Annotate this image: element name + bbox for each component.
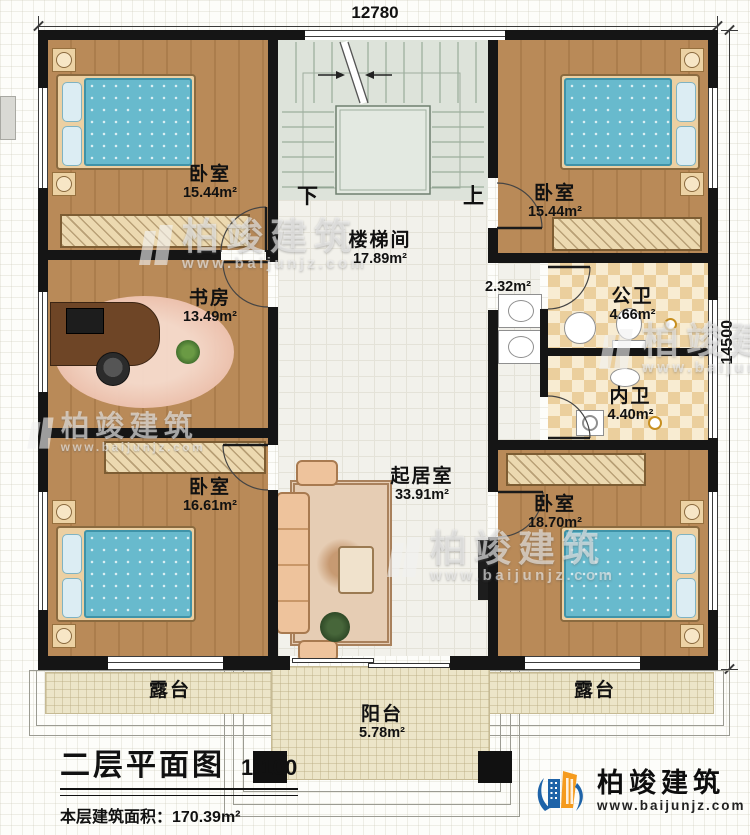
wall: [38, 428, 278, 438]
sink-basin: [508, 300, 534, 322]
nightstand: [680, 48, 704, 72]
pillow: [676, 126, 696, 166]
pillow: [676, 82, 696, 122]
adjacent-structure: [0, 96, 16, 140]
floor-plan: 12780 14500: [0, 0, 750, 835]
office-chair: [96, 352, 130, 386]
monitor: [66, 308, 104, 334]
window: [708, 88, 718, 188]
sliding-door: [368, 663, 450, 668]
bed-mattress: [564, 78, 672, 166]
plan-title: 二层平面图: [60, 740, 225, 784]
nightstand: [680, 624, 704, 648]
pillow: [62, 578, 82, 618]
brand-url: www.baijunjz.com: [597, 798, 746, 813]
dimension-top-line: [38, 26, 718, 27]
dimension-top-label: 12780: [0, 3, 750, 23]
nightstand: [680, 172, 704, 196]
sink-basin: [610, 368, 640, 387]
wall: [488, 30, 498, 178]
wall: [488, 310, 498, 440]
window: [708, 492, 718, 610]
terrace-door: [525, 656, 640, 670]
plant: [320, 612, 350, 642]
wall: [640, 656, 718, 670]
pillow: [62, 82, 82, 122]
bed-mattress: [84, 530, 192, 618]
nightstand: [52, 500, 76, 524]
floor-drain: [648, 416, 662, 430]
wall: [223, 656, 290, 670]
brand-name: 柏竣建筑: [597, 769, 746, 797]
balcony-pillar: [478, 751, 512, 783]
washer-drum: [582, 415, 598, 431]
stair-up-label: 上: [463, 180, 484, 210]
pillow: [62, 534, 82, 574]
window: [38, 292, 48, 392]
pillow: [676, 534, 696, 574]
bed-mattress: [564, 530, 672, 618]
tv: [478, 540, 488, 600]
stair-down-label: 下: [297, 180, 318, 210]
wall: [38, 656, 108, 670]
wall: [266, 250, 278, 260]
wardrobe: [104, 441, 266, 474]
nightstand: [52, 624, 76, 648]
wall: [268, 307, 278, 430]
wall: [488, 537, 498, 656]
bed-mattress: [84, 78, 192, 166]
sliding-door: [292, 658, 374, 663]
wall: [450, 656, 525, 670]
wardrobe: [552, 217, 702, 251]
nightstand: [680, 500, 704, 524]
brand-logo: 柏竣建筑 www.baijunjz.com: [533, 764, 746, 818]
floor-drain: [664, 318, 677, 331]
nightstand: [52, 48, 76, 72]
nightstand: [52, 172, 76, 196]
wall: [488, 228, 498, 263]
wall: [548, 348, 708, 356]
wall: [488, 253, 718, 263]
sink-basin: [564, 312, 596, 344]
title-underline: [60, 788, 298, 796]
plan-scale: 1:100: [241, 755, 297, 781]
terrace-left-floor: [45, 672, 297, 714]
wardrobe: [60, 214, 250, 248]
window: [38, 88, 48, 188]
wall: [38, 250, 221, 260]
wall: [268, 490, 278, 656]
window: [708, 300, 718, 438]
plant: [176, 340, 200, 364]
sink-basin: [508, 336, 534, 358]
dimension-right-label: 14500: [719, 320, 741, 365]
terrace-door: [108, 656, 223, 670]
toilet-bowl: [616, 308, 642, 340]
window: [38, 492, 48, 610]
wall: [268, 30, 278, 262]
stairwell-floor: [278, 40, 488, 200]
pillow: [676, 578, 696, 618]
window: [305, 30, 505, 40]
wall: [488, 440, 718, 450]
dimension-right-line: [729, 30, 730, 670]
terrace-right-floor: [480, 672, 714, 714]
floor-area-text: 本层建筑面积：170.39m²: [60, 803, 330, 827]
armchair: [296, 460, 338, 486]
wardrobe: [506, 453, 646, 486]
wall: [488, 450, 498, 492]
coffee-table: [338, 546, 374, 594]
brand-logo-icon: [533, 764, 587, 818]
pillow: [62, 126, 82, 166]
title-block: 二层平面图 1:100 本层建筑面积：170.39m² 层高：3.4m: [60, 740, 330, 835]
sofa: [276, 492, 310, 634]
wall: [540, 309, 548, 397]
